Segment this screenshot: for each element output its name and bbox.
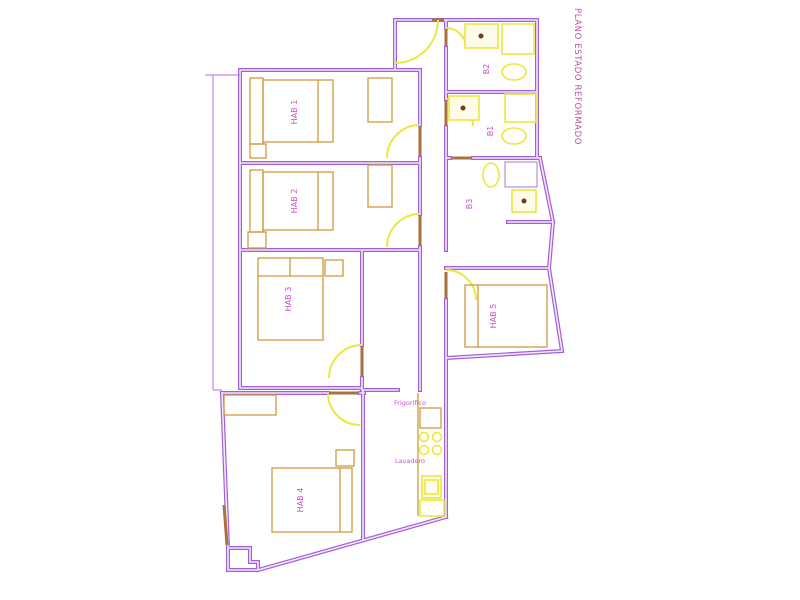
stove-icon xyxy=(420,433,442,455)
wardrobe-icon-hab1 xyxy=(368,78,392,122)
toilet-icon-b1 xyxy=(502,128,526,144)
label-b3: B3 xyxy=(465,199,474,210)
sink-icon-b1 xyxy=(449,96,479,120)
wardrobe-icon-hab2 xyxy=(368,165,392,207)
counter-icon xyxy=(420,500,444,516)
floor-plan-page: HAB 1 HAB 2 HAB 3 HAB 4 HAB 5 B2 B1 B3 F… xyxy=(0,0,800,600)
sink-icon-b2 xyxy=(465,24,498,48)
label-b2: B2 xyxy=(482,64,491,75)
entry-door-icon xyxy=(395,20,438,63)
kitchen-sink-icon xyxy=(422,476,441,498)
hab2-door-icon xyxy=(387,214,420,247)
label-b1: B1 xyxy=(486,126,495,137)
wardrobe-icon-hab4 xyxy=(224,395,276,415)
shower-icon-b2 xyxy=(502,24,534,54)
label-hab5: HAB 5 xyxy=(489,304,498,329)
hab4-door-icon xyxy=(328,393,360,425)
shower-icon-b3 xyxy=(505,162,537,187)
bed-icon-hab3 xyxy=(258,258,343,340)
terrace-line xyxy=(205,75,240,390)
label-hab4: HAB 4 xyxy=(296,488,305,513)
fridge-icon xyxy=(420,408,441,428)
floor-plan-drawing: HAB 1 HAB 2 HAB 3 HAB 4 HAB 5 B2 B1 B3 F… xyxy=(0,0,800,600)
toilet-icon-b2 xyxy=(502,64,526,80)
bathroom-fixtures xyxy=(449,24,537,212)
label-hab3: HAB 3 xyxy=(284,287,293,312)
furniture xyxy=(224,78,547,532)
kitchen-fixtures xyxy=(418,393,444,516)
label-fridge: Frigorífico xyxy=(394,399,426,407)
hab3-door-icon xyxy=(329,345,362,378)
shower-icon-b1 xyxy=(505,94,536,122)
room-labels: HAB 1 HAB 2 HAB 3 HAB 4 HAB 5 B2 B1 B3 F… xyxy=(284,64,498,513)
label-hab2: HAB 2 xyxy=(290,189,299,214)
b2-door-icon xyxy=(446,28,466,48)
toilet-icon-b3 xyxy=(483,163,499,187)
plan-title: PLANO ESTADO REFORMADO xyxy=(572,8,582,178)
bed-icon-hab4 xyxy=(272,450,354,532)
label-laundry: Lavadero xyxy=(395,457,425,465)
door-arcs xyxy=(328,20,476,425)
bed-icon-hab5 xyxy=(465,285,547,347)
label-hab1: HAB 1 xyxy=(290,100,299,125)
hab1-door-icon xyxy=(387,125,420,158)
sink-icon-b3 xyxy=(512,190,536,212)
